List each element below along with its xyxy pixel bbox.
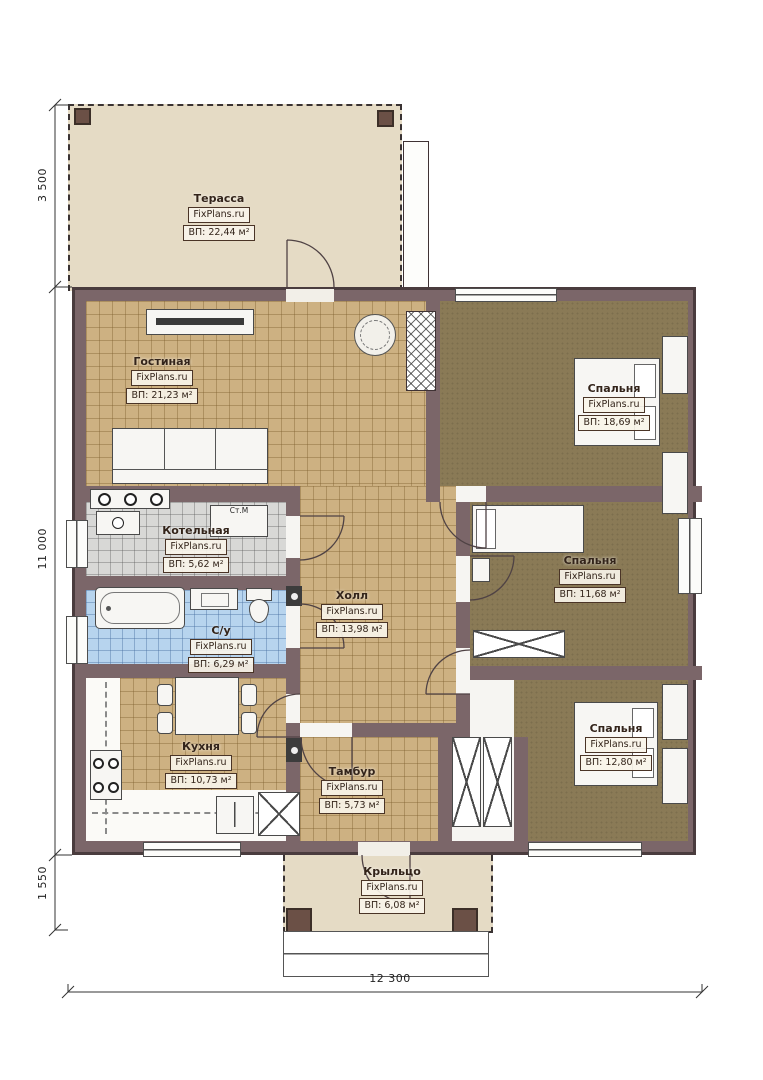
washing-machine-label: Ст.М xyxy=(211,506,267,515)
wardrobe xyxy=(452,737,481,827)
chair xyxy=(157,712,173,734)
nightstand xyxy=(662,452,688,514)
room-area: ВП: 6,08 м² xyxy=(359,898,424,914)
brand-link[interactable]: FixPlans.ru xyxy=(585,737,646,753)
wall xyxy=(426,486,440,502)
brand-link[interactable]: FixPlans.ru xyxy=(321,604,382,620)
wall xyxy=(286,723,300,737)
brand-link[interactable]: FixPlans.ru xyxy=(583,397,644,413)
brand-link[interactable]: FixPlans.ru xyxy=(190,639,251,655)
wall xyxy=(456,694,470,737)
room-label-porch: Крыльцо FixPlans.ru ВП: 6,08 м² xyxy=(342,865,442,914)
terrace-fence xyxy=(403,141,429,289)
dimension-porch-depth: 1 550 xyxy=(36,866,49,900)
boiler-unit xyxy=(96,511,140,535)
terrace-column-right xyxy=(377,110,394,127)
wall xyxy=(286,648,300,694)
room-label-hall: Холл FixPlans.ru ВП: 13,98 м² xyxy=(302,589,402,638)
dimension-house-width: 12 300 xyxy=(356,972,424,985)
room-label-bedroom1: Спальня FixPlans.ru ВП: 18,69 м² xyxy=(564,382,664,431)
chair xyxy=(157,684,173,706)
window xyxy=(678,518,702,594)
window xyxy=(143,842,241,857)
room-label-tambur: Тамбур FixPlans.ru ВП: 5,73 м² xyxy=(302,765,402,814)
brand-link[interactable]: FixPlans.ru xyxy=(188,207,249,223)
chair xyxy=(241,684,257,706)
bathtub xyxy=(95,587,185,629)
wall xyxy=(470,666,702,680)
window xyxy=(66,616,88,664)
brand-link[interactable]: FixPlans.ru xyxy=(361,880,422,896)
wardrobe xyxy=(483,737,512,827)
brand-link[interactable]: FixPlans.ru xyxy=(321,780,382,796)
bathroom-sink xyxy=(190,588,238,610)
room-name: Спальня xyxy=(564,554,617,567)
room-area: ВП: 5,62 м² xyxy=(163,557,228,573)
room-label-kitchen: Кухня FixPlans.ru ВП: 10,73 м² xyxy=(151,740,251,789)
chimney-shaft xyxy=(406,311,436,391)
room-name: Гостиная xyxy=(133,355,190,368)
brand-link[interactable]: FixPlans.ru xyxy=(559,569,620,585)
room-area: ВП: 13,98 м² xyxy=(316,622,387,638)
vent xyxy=(286,738,302,762)
window xyxy=(66,520,88,568)
room-name: С/у xyxy=(211,624,230,637)
wall xyxy=(286,486,300,516)
wall xyxy=(456,602,470,648)
brand-link[interactable]: FixPlans.ru xyxy=(131,370,192,386)
room-label-boiler: Котельная FixPlans.ru ВП: 5,62 м² xyxy=(146,524,246,573)
wall xyxy=(456,502,470,556)
room-area: ВП: 21,23 м² xyxy=(126,388,197,404)
room-name: Холл xyxy=(336,589,368,602)
wall xyxy=(514,737,528,841)
room-area: ВП: 22,44 м² xyxy=(183,225,254,241)
room-area: ВП: 11,68 м² xyxy=(554,587,625,603)
room-label-bedroom2: Спальня FixPlans.ru ВП: 11,68 м² xyxy=(540,554,640,603)
chair xyxy=(241,712,257,734)
nightstand xyxy=(472,558,490,582)
dimension-terrace-depth: 3 500 xyxy=(36,168,49,202)
window xyxy=(455,288,557,302)
room-name: Кухня xyxy=(182,740,220,753)
entrance-door-opening xyxy=(358,842,410,856)
wall xyxy=(438,723,452,841)
room-area: ВП: 6,29 м² xyxy=(188,657,253,673)
room-area: ВП: 12,80 м² xyxy=(580,755,651,771)
wardrobe xyxy=(473,630,565,658)
nightstand xyxy=(662,336,688,394)
room-name: Спальня xyxy=(590,722,643,735)
room-label-bath: С/у FixPlans.ru ВП: 6,29 м² xyxy=(171,624,271,673)
room-label-terrace: Терасса FixPlans.ru ВП: 22,44 м² xyxy=(169,192,269,241)
fridge xyxy=(258,792,300,836)
room-area: ВП: 18,69 м² xyxy=(578,415,649,431)
room-name: Котельная xyxy=(162,524,229,537)
room-name: Крыльцо xyxy=(363,865,421,878)
terrace-column-left xyxy=(74,108,91,125)
dimension-house-depth: 11 000 xyxy=(36,528,49,570)
room-name: Терасса xyxy=(194,192,245,205)
kitchen-sink xyxy=(216,796,254,834)
window xyxy=(528,842,642,857)
terrace-door-opening xyxy=(286,289,334,302)
room-name: Спальня xyxy=(588,382,641,395)
room-label-living: Гостиная FixPlans.ru ВП: 21,23 м² xyxy=(112,355,212,404)
room-area: ВП: 5,73 м² xyxy=(319,798,384,814)
vent xyxy=(286,586,302,606)
brand-link[interactable]: FixPlans.ru xyxy=(165,539,226,555)
sofa xyxy=(112,428,268,484)
dining-table xyxy=(175,677,239,735)
brand-link[interactable]: FixPlans.ru xyxy=(170,755,231,771)
stove xyxy=(90,750,122,800)
boiler-hob xyxy=(90,489,170,509)
floor-plan: Ст.М xyxy=(0,0,763,1080)
porch-steps xyxy=(283,931,489,977)
room-name: Тамбур xyxy=(329,765,376,778)
pillow xyxy=(476,509,496,549)
room-label-bedroom3: Спальня FixPlans.ru ВП: 12,80 м² xyxy=(566,722,666,771)
plant-icon xyxy=(354,314,396,356)
room-area: ВП: 10,73 м² xyxy=(165,773,236,789)
tv xyxy=(156,318,244,325)
